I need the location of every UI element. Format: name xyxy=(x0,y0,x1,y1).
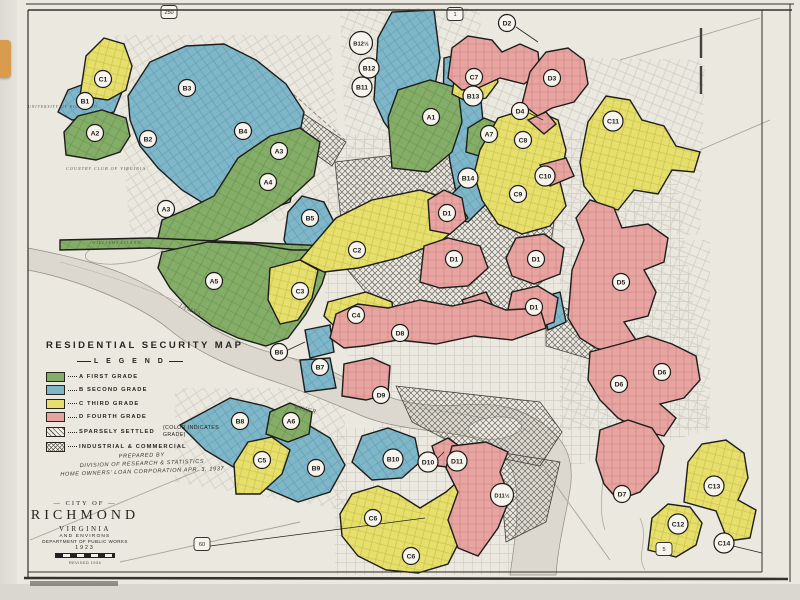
zone-label-D11½: D11½ xyxy=(491,484,514,507)
legend-heading: L E G E N D xyxy=(74,358,296,365)
zone-label-C14: C14 xyxy=(714,533,734,553)
svg-text:B12½: B12½ xyxy=(353,40,369,47)
grade-b-swatch xyxy=(46,385,65,395)
svg-text:D11: D11 xyxy=(451,458,463,465)
zone-label-A1: A1 xyxy=(423,109,440,126)
svg-text:A3: A3 xyxy=(275,148,284,155)
grade-c-label: C THIRD GRADE xyxy=(79,401,139,407)
index-tab-sticker xyxy=(0,40,11,78)
city-name: RICHMOND xyxy=(26,508,144,524)
zone-label-A4: A4 xyxy=(260,174,277,191)
industrial-swatch xyxy=(46,442,65,452)
zone-label-B4: B4 xyxy=(235,123,252,140)
zone-label-C6: C6 xyxy=(403,548,420,565)
svg-text:C11: C11 xyxy=(607,118,619,125)
svg-text:C6: C6 xyxy=(369,515,378,522)
zone-label-C11: C11 xyxy=(603,111,623,131)
svg-text:D11½: D11½ xyxy=(494,492,509,499)
dotted-leader xyxy=(68,403,77,404)
dotted-leader xyxy=(68,376,77,377)
svg-text:250: 250 xyxy=(164,10,173,16)
revised-note: REVISED 1934 xyxy=(26,560,144,565)
svg-text:B3: B3 xyxy=(183,85,192,92)
svg-text:B13: B13 xyxy=(467,93,480,100)
sparsely-settled-swatch xyxy=(46,427,65,437)
svg-text:C13: C13 xyxy=(708,483,721,490)
legend-row-d: D FOURTH GRADE xyxy=(46,411,296,425)
svg-text:D8: D8 xyxy=(396,330,405,337)
svg-text:D7: D7 xyxy=(618,491,627,498)
grade-a-label: A FIRST GRADE xyxy=(79,374,138,380)
legend-row-b: B SECOND GRADE xyxy=(46,384,296,398)
zone-label-D6: D6 xyxy=(611,376,628,393)
svg-text:D6: D6 xyxy=(615,381,624,388)
map-title: RESIDENTIAL SECURITY MAP xyxy=(46,340,296,351)
grade-d-swatch xyxy=(46,412,65,422)
svg-text:C12: C12 xyxy=(672,521,685,528)
sparsely-settled-note: (COLOR INDICATES GRADE) xyxy=(163,425,219,438)
dotted-leader xyxy=(68,417,77,418)
svg-text:A4: A4 xyxy=(264,179,273,186)
svg-text:D9: D9 xyxy=(377,392,386,399)
zone-label-B5: B5 xyxy=(302,210,319,227)
svg-text:A2: A2 xyxy=(91,130,100,137)
svg-text:C3: C3 xyxy=(296,288,305,295)
svg-text:60: 60 xyxy=(199,542,205,548)
margin-stamp-smudge xyxy=(30,581,118,586)
svg-text:A1: A1 xyxy=(427,114,436,121)
svg-text:D5: D5 xyxy=(617,279,626,286)
grade-c-swatch xyxy=(46,399,65,409)
zone-label-D11: D11 xyxy=(447,451,467,471)
sparsely-settled-label: SPARSELY SETTLED xyxy=(79,429,155,435)
grade-a-swatch xyxy=(46,372,65,382)
zone-label-B14: B14 xyxy=(458,168,478,188)
zone-label-D9: D9 xyxy=(373,387,390,404)
dotted-leader xyxy=(68,446,77,447)
zone-label-B2: B2 xyxy=(140,131,157,148)
svg-text:B2: B2 xyxy=(144,136,153,143)
svg-text:C14: C14 xyxy=(718,540,731,547)
zone-label-C7: C7 xyxy=(466,69,483,86)
zone-label-A3: A3 xyxy=(158,201,175,218)
zone-label-C2: C2 xyxy=(349,242,366,259)
city-of-label: — CITY OF — xyxy=(26,500,144,507)
zone-label-A7: A7 xyxy=(481,126,498,143)
svg-text:B14: B14 xyxy=(462,175,475,182)
dash-ornament xyxy=(77,361,91,362)
svg-text:D3: D3 xyxy=(548,75,557,82)
zone-label-B9: B9 xyxy=(308,460,325,477)
zone-label-D1: D1 xyxy=(526,299,543,316)
zone-label-D2: D2 xyxy=(499,15,516,32)
route-shield-60: 60 xyxy=(194,538,210,551)
zone-label-D1: D1 xyxy=(446,251,463,268)
zone-label-D1: D1 xyxy=(528,251,545,268)
grade-d-label: D FOURTH GRADE xyxy=(79,414,147,420)
svg-text:A7: A7 xyxy=(485,131,494,138)
zone-label-D7: D7 xyxy=(614,486,631,503)
route-shield-250: 250 xyxy=(161,6,177,19)
zone-label-C6: C6 xyxy=(365,510,382,527)
svg-text:C4: C4 xyxy=(352,312,361,319)
svg-text:B11: B11 xyxy=(356,84,368,91)
svg-text:C9: C9 xyxy=(514,191,523,198)
svg-text:C1: C1 xyxy=(99,76,108,83)
zone-label-C9: C9 xyxy=(510,186,527,203)
zone-label-C1: C1 xyxy=(95,71,112,88)
zone-label-B12½: B12½ xyxy=(350,32,373,55)
svg-text:1: 1 xyxy=(453,12,456,18)
zone-label-D4: D4 xyxy=(512,103,529,120)
zone-label-C8: C8 xyxy=(515,132,532,149)
zone-label-B11: B11 xyxy=(352,77,372,97)
zone-label-C3: C3 xyxy=(292,283,309,300)
svg-text:A5: A5 xyxy=(210,278,219,285)
zone-label-B3: B3 xyxy=(179,80,196,97)
svg-text:C6: C6 xyxy=(407,553,416,560)
svg-text:C8: C8 xyxy=(519,137,528,144)
dotted-leader xyxy=(68,432,77,433)
legend: RESIDENTIAL SECURITY MAP L E G E N D A F… xyxy=(46,340,296,454)
svg-text:B9: B9 xyxy=(312,465,321,472)
svg-text:B1: B1 xyxy=(81,98,90,105)
scanner-edge-bottom xyxy=(0,584,800,600)
svg-text:D6: D6 xyxy=(658,369,667,376)
zone-label-D1: D1 xyxy=(439,205,456,222)
scanned-map-page: UNIVERSITY OF RICHMONDCOUNTRY CLUB OF VI… xyxy=(0,0,800,600)
svg-text:D10: D10 xyxy=(422,459,435,466)
zone-label-C4: C4 xyxy=(348,307,365,324)
zone-label-C10: C10 xyxy=(535,166,555,186)
zone-label-B1: B1 xyxy=(77,93,94,110)
svg-text:B12: B12 xyxy=(363,65,376,72)
svg-text:A3: A3 xyxy=(162,206,171,213)
dotted-leader xyxy=(68,390,77,391)
zone-label-D6: D6 xyxy=(654,364,671,381)
zone-label-A3: A3 xyxy=(271,143,288,160)
svg-text:C10: C10 xyxy=(539,173,552,180)
scanner-edge xyxy=(0,0,17,600)
svg-text:C2: C2 xyxy=(353,247,362,254)
svg-text:D1: D1 xyxy=(532,256,541,263)
svg-text:B5: B5 xyxy=(306,215,315,222)
zone-label-D10: D10 xyxy=(418,452,438,472)
zone-label-D5: D5 xyxy=(613,274,630,291)
zone-label-C13: C13 xyxy=(704,476,724,496)
legend-row-c: C THIRD GRADE xyxy=(46,397,296,411)
legend-row-sparse: SPARSELY SETTLED (COLOR INDICATES GRADE) xyxy=(46,424,296,440)
svg-text:B7: B7 xyxy=(316,364,325,371)
state-name: VIRGINIA xyxy=(26,525,144,533)
scale-bar xyxy=(55,553,115,558)
zone-label-D8: D8 xyxy=(392,325,409,342)
svg-text:D4: D4 xyxy=(516,108,525,115)
title-block: — CITY OF — RICHMOND VIRGINIA AND ENVIRO… xyxy=(26,500,144,565)
zone-label-B10: B10 xyxy=(383,449,403,469)
zone-label-C5: C5 xyxy=(254,452,271,469)
zone-label-A2: A2 xyxy=(87,125,104,142)
zone-label-B12: B12 xyxy=(359,58,379,78)
svg-text:D2: D2 xyxy=(503,20,512,27)
dash-ornament xyxy=(169,361,183,362)
base-map-year: 1923 xyxy=(26,545,144,551)
svg-text:D1: D1 xyxy=(530,304,539,311)
legend-row-a: A FIRST GRADE xyxy=(46,370,296,384)
svg-text:B10: B10 xyxy=(387,456,400,463)
place-label: COUNTRY CLUB OF VIRGINIA xyxy=(66,166,146,171)
zone-label-B7: B7 xyxy=(312,359,329,376)
svg-text:5: 5 xyxy=(662,547,665,553)
svg-text:D1: D1 xyxy=(450,256,459,263)
svg-text:B4: B4 xyxy=(239,128,248,135)
grade-b-label: B SECOND GRADE xyxy=(79,387,148,393)
svg-text:C5: C5 xyxy=(258,457,267,464)
zone-label-A5: A5 xyxy=(206,273,223,290)
department-label: DEPARTMENT OF PUBLIC WORKS xyxy=(26,539,144,544)
route-shield-5: 5 xyxy=(656,543,672,556)
zone-label-B13: B13 xyxy=(463,86,483,106)
zone-label-D3: D3 xyxy=(544,70,561,87)
svg-text:C7: C7 xyxy=(470,74,479,81)
svg-text:D1: D1 xyxy=(443,210,452,217)
place-label: WILLIAMS ISLAND xyxy=(92,240,141,245)
industrial-label: INDUSTRIAL & COMMERCIAL xyxy=(79,444,187,450)
zone-label-C12: C12 xyxy=(668,514,688,534)
